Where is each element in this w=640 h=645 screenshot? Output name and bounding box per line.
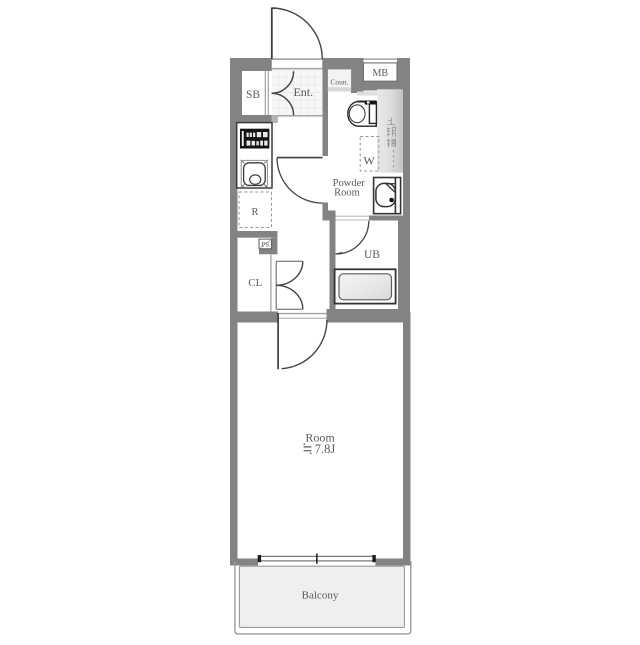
svg-text:PS: PS [262,241,270,249]
svg-text:W: W [363,154,375,168]
svg-text:Room: Room [334,188,360,199]
svg-text:R: R [251,207,258,218]
svg-text:Ent.: Ent. [293,85,313,99]
svg-text:CL: CL [248,277,262,289]
svg-text:7.8J: 7.8J [315,442,336,456]
svg-text:MB: MB [373,68,389,79]
svg-text:UB: UB [364,249,380,261]
svg-text:SB: SB [246,89,260,101]
svg-text:Coun.: Coun. [330,77,348,86]
svg-text:Balcony: Balcony [302,590,339,602]
